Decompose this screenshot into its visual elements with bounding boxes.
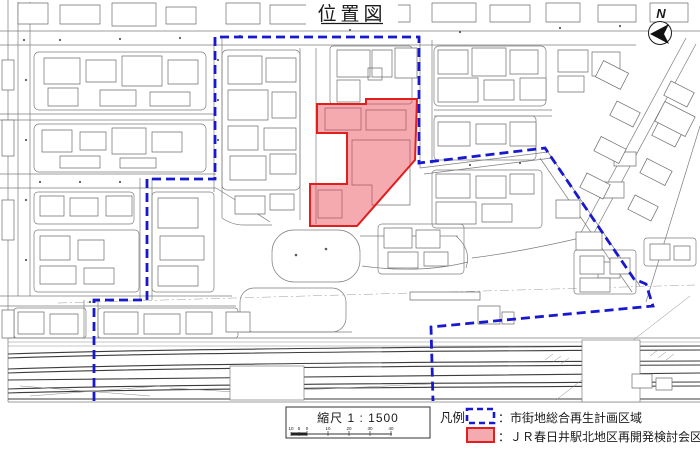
svg-text:30: 30 [367,426,373,431]
scale-label: 縮尺 1 : 1500 [317,410,399,425]
scale-box: 縮尺 1 : 1500 10 5 0 10 20 30 40 [286,407,430,438]
redevelopment-area-polygon [310,99,417,226]
rail-overpass [582,340,640,402]
legend-item-label: ：ＪＲ春日井駅北地区再開発検討会区域 [498,429,700,444]
page-title: 位置図 [317,3,386,25]
legend-swatch-red-fill [467,428,494,442]
legend-item-redevelopment-area: ：ＪＲ春日井駅北地区再開発検討会区域 [467,428,700,444]
legend-heading: 凡例 [440,411,465,425]
svg-text:40: 40 [388,426,394,431]
svg-text:20: 20 [346,426,352,431]
location-map-canvas: 位置図 N 縮尺 1 : 1500 10 5 0 10 20 30 40 凡例 … [0,0,700,456]
station-underpass [230,366,304,400]
legend-item-label: ：市街地総合再生計画区域 [498,410,642,425]
map-title-block: 位置図 [306,1,398,28]
legend-item-planning-area: ：市街地総合再生計画区域 [467,409,642,425]
location-map-page: 位置図 N 縮尺 1 : 1500 10 5 0 10 20 30 40 凡例 … [0,0,700,456]
svg-text:10: 10 [288,426,294,431]
diagonal-parcels [580,61,695,221]
legend-swatch-blue-dashed [467,409,494,423]
svg-text:10: 10 [325,426,331,431]
legend: 凡例 ：市街地総合再生計画区域 ：ＪＲ春日井駅北地区再開発検討会区域 [440,409,700,444]
north-label: N [656,6,666,21]
